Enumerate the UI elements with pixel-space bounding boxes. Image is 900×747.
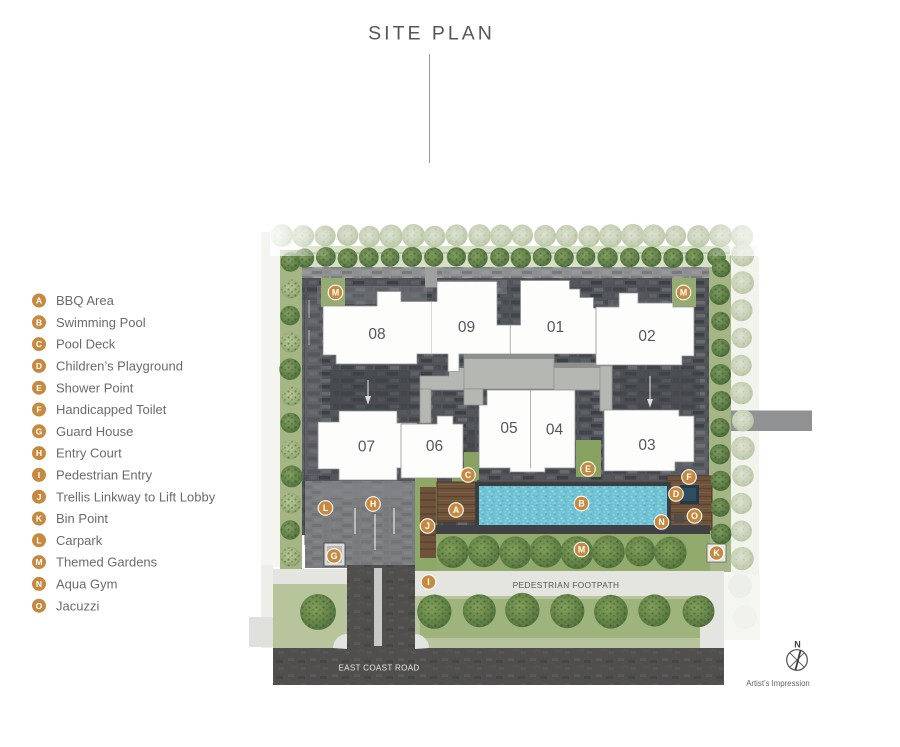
svg-text:B: B	[578, 499, 584, 509]
svg-text:06: 06	[426, 438, 443, 455]
svg-text:L: L	[323, 503, 329, 513]
svg-text:C: C	[465, 470, 472, 480]
svg-text:J: J	[37, 492, 42, 502]
svg-text:03: 03	[638, 437, 655, 454]
svg-text:Shower Point: Shower Point	[56, 380, 134, 395]
svg-text:F: F	[36, 405, 41, 415]
svg-text:L: L	[36, 535, 41, 545]
svg-text:Guard House: Guard House	[56, 424, 133, 439]
svg-text:04: 04	[546, 422, 564, 439]
svg-text:O: O	[36, 601, 43, 611]
svg-text:K: K	[36, 514, 43, 524]
svg-text:B: B	[36, 317, 42, 327]
svg-text:Jacuzzi: Jacuzzi	[56, 598, 99, 613]
svg-text:J: J	[425, 521, 430, 531]
svg-text:Handicapped Toilet: Handicapped Toilet	[56, 402, 167, 417]
svg-text:H: H	[36, 448, 42, 458]
svg-text:M: M	[35, 557, 42, 567]
svg-text:01: 01	[547, 319, 564, 336]
svg-text:F: F	[686, 472, 692, 482]
svg-text:N: N	[794, 640, 801, 650]
svg-text:Bin Point: Bin Point	[56, 511, 108, 526]
svg-text:E: E	[585, 464, 591, 474]
svg-text:Children’s Playground: Children’s Playground	[56, 359, 183, 374]
svg-text:E: E	[36, 383, 42, 393]
svg-text:Artist’s Impression: Artist’s Impression	[746, 679, 810, 688]
svg-text:A: A	[36, 296, 42, 306]
svg-text:N: N	[36, 579, 42, 589]
svg-text:M: M	[578, 545, 585, 555]
svg-text:Themed Gardens: Themed Gardens	[56, 555, 158, 570]
svg-text:Aqua Gym: Aqua Gym	[56, 577, 117, 592]
svg-text:Pedestrian Entry: Pedestrian Entry	[56, 468, 153, 483]
svg-text:09: 09	[458, 319, 475, 336]
svg-text:PEDESTRIAN FOOTPATH: PEDESTRIAN FOOTPATH	[513, 580, 620, 590]
svg-text:07: 07	[358, 439, 375, 456]
svg-text:Pool Deck: Pool Deck	[56, 337, 116, 352]
svg-text:05: 05	[500, 420, 517, 437]
svg-text:Entry Court: Entry Court	[56, 446, 122, 461]
svg-text:K: K	[713, 548, 720, 558]
svg-text:Swimming Pool: Swimming Pool	[56, 315, 146, 330]
svg-text:SITE PLAN: SITE PLAN	[368, 23, 495, 45]
svg-text:I: I	[38, 470, 40, 480]
svg-text:H: H	[370, 499, 376, 509]
svg-text:Carpark: Carpark	[56, 533, 103, 548]
svg-text:D: D	[36, 361, 42, 371]
svg-text:Trellis Linkway to Lift Lobby: Trellis Linkway to Lift Lobby	[56, 489, 216, 504]
svg-text:BBQ Area: BBQ Area	[56, 293, 115, 308]
svg-text:O: O	[691, 511, 698, 521]
svg-text:G: G	[331, 551, 338, 561]
svg-text:D: D	[673, 489, 679, 499]
svg-text:C: C	[36, 339, 42, 349]
svg-text:EAST COAST ROAD: EAST COAST ROAD	[338, 664, 419, 673]
svg-text:A: A	[453, 505, 460, 515]
svg-text:M: M	[332, 288, 339, 298]
svg-text:08: 08	[368, 326, 385, 343]
svg-text:02: 02	[638, 328, 655, 345]
svg-text:I: I	[427, 577, 429, 587]
svg-text:G: G	[36, 426, 43, 436]
svg-text:M: M	[680, 288, 687, 298]
svg-text:N: N	[658, 517, 664, 527]
